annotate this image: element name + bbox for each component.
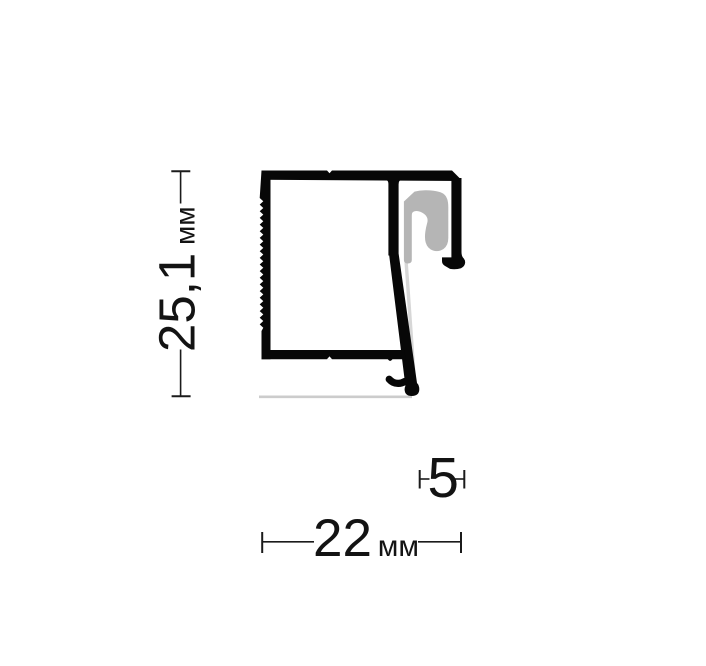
svg-text:5: 5: [428, 446, 459, 509]
svg-text:25,1 мм: 25,1 мм: [149, 206, 206, 352]
svg-text:22 мм: 22 мм: [313, 509, 419, 568]
